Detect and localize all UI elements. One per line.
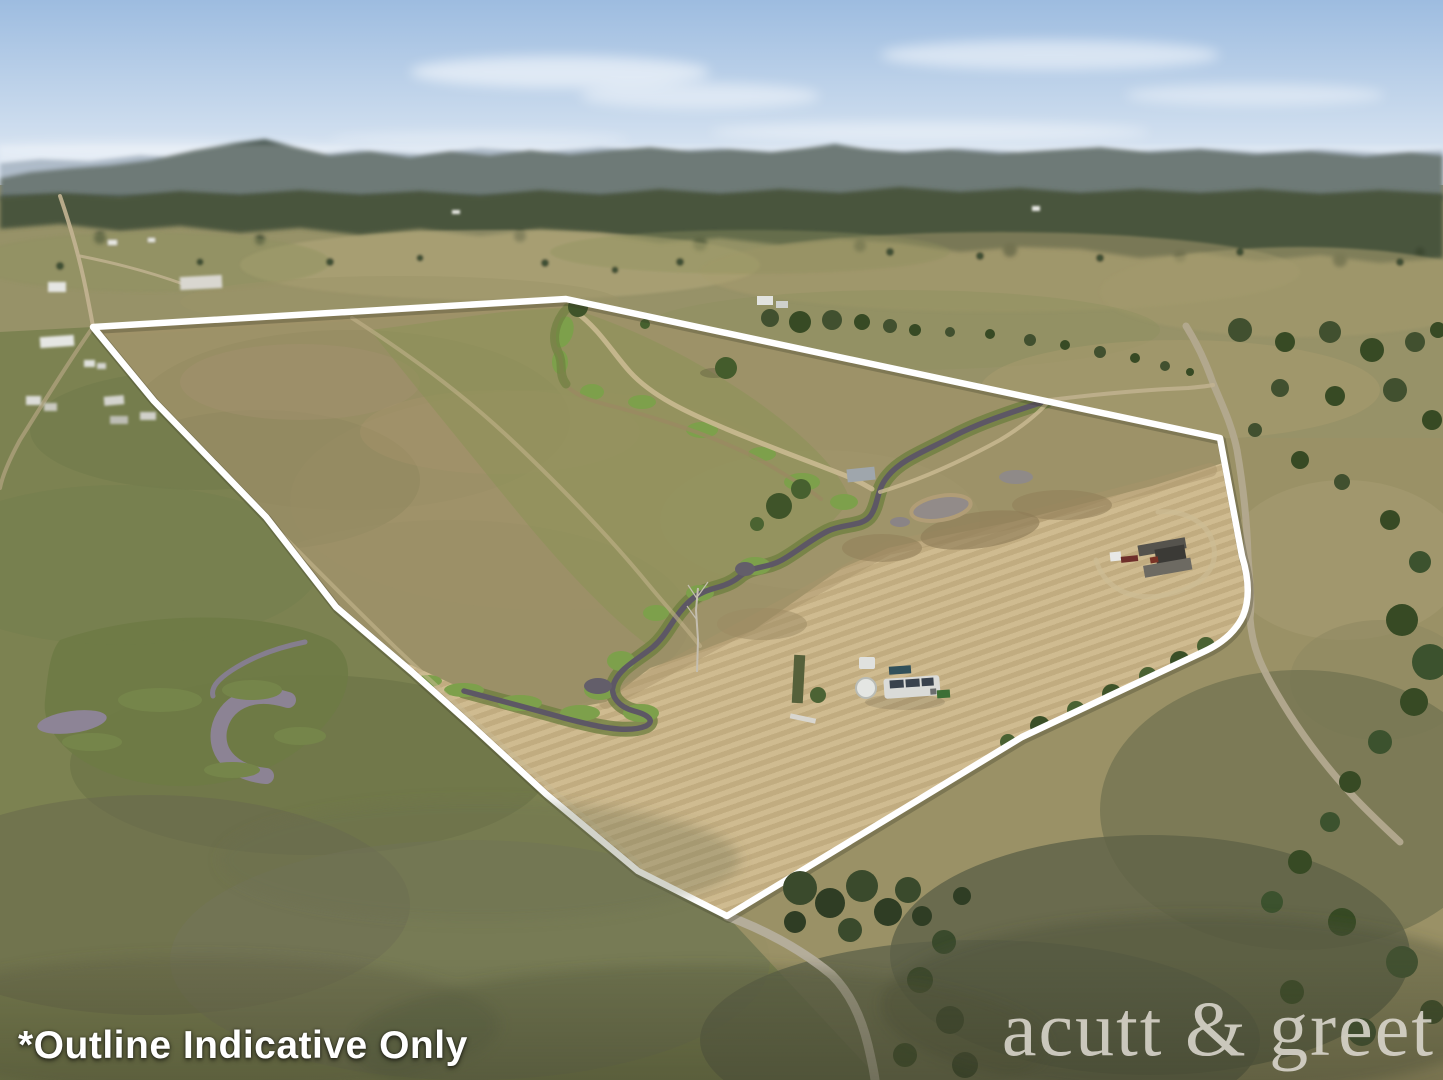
solar-frame (889, 665, 912, 675)
box-trailer (859, 657, 875, 669)
mower (937, 690, 951, 699)
solar-panels (889, 680, 904, 689)
water-tank (856, 678, 876, 698)
mountain-ranges (0, 139, 1443, 200)
aerial-property-photo: *Outline Indicative Only acutt & greet (0, 0, 1443, 1080)
truck-cab (1110, 551, 1122, 561)
caravan (883, 675, 940, 699)
watermark-text: acutt & greet (1002, 984, 1435, 1074)
horizon-haze (0, 145, 1443, 195)
disclaimer-text: *Outline Indicative Only (18, 1024, 468, 1068)
photo-scene (0, 0, 1443, 1080)
